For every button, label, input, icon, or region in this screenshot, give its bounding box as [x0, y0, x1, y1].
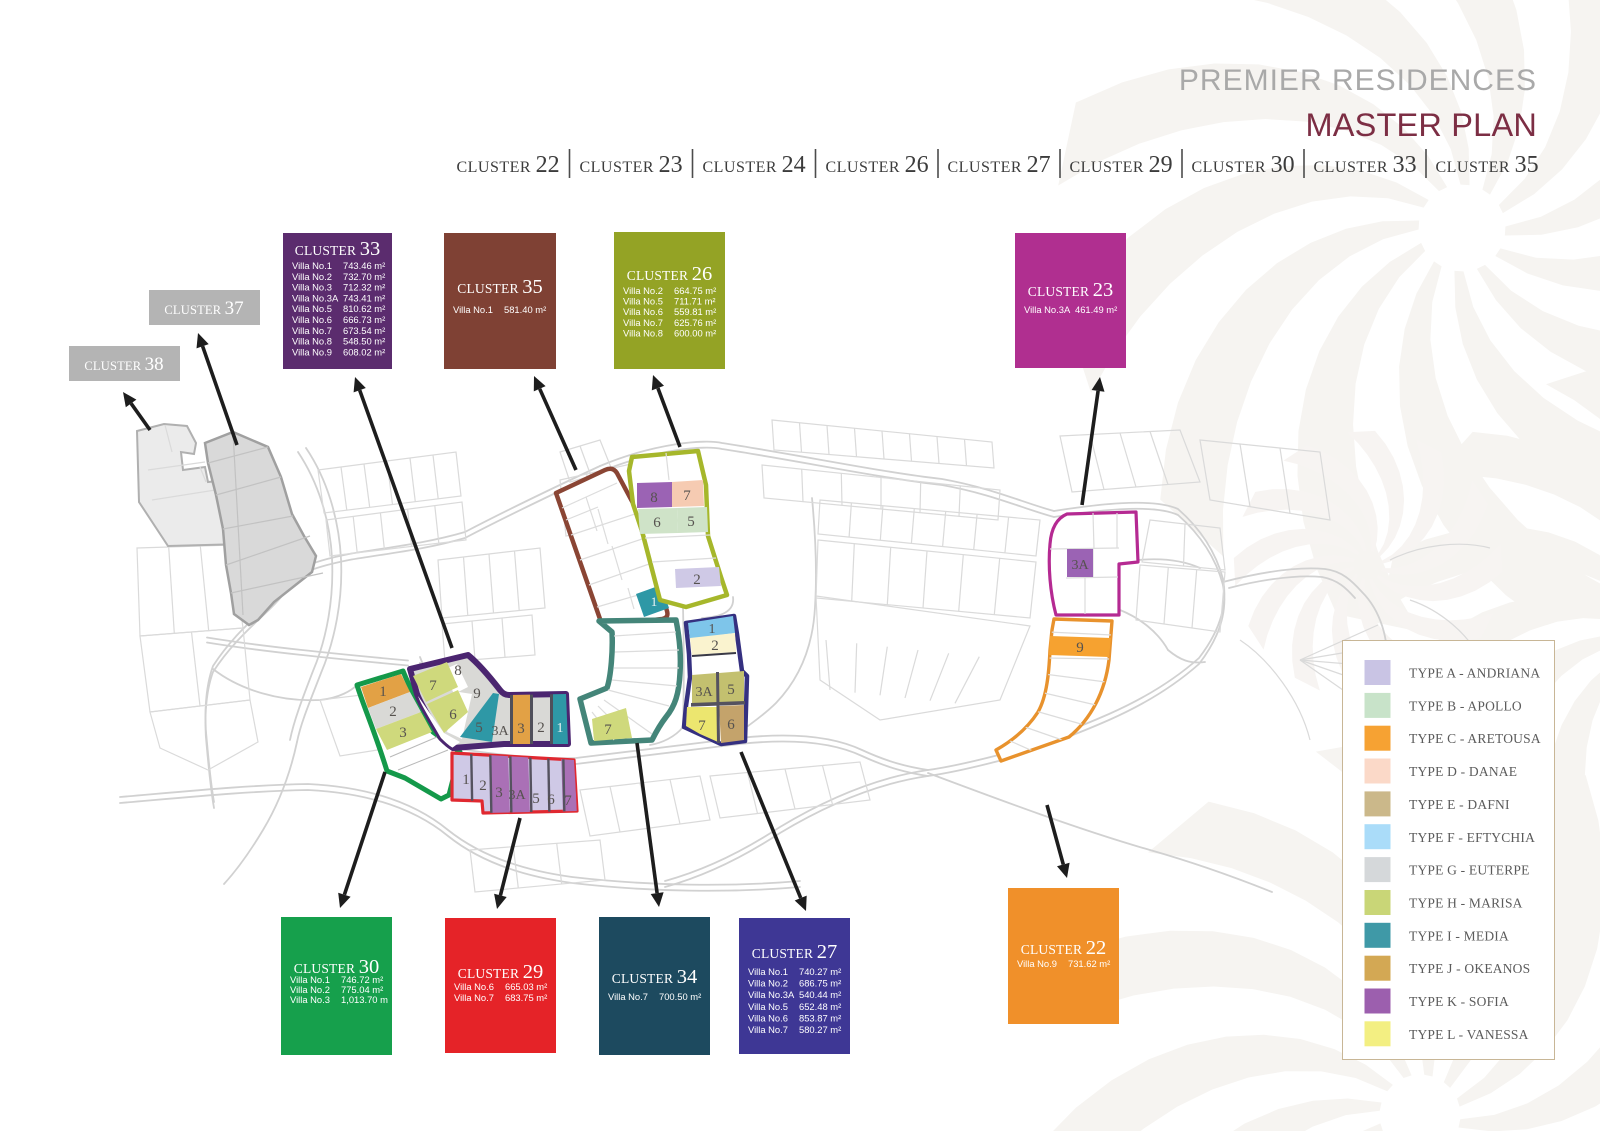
svg-text:5: 5	[727, 682, 735, 698]
svg-text:1: 1	[557, 721, 564, 736]
svg-text:608.02 m²: 608.02 m²	[343, 346, 385, 357]
svg-text:TYPE D - DANAE: TYPE D - DANAE	[1409, 764, 1517, 779]
svg-text:3: 3	[399, 725, 407, 741]
svg-text:743.41 m²: 743.41 m²	[343, 292, 385, 303]
svg-text:664.75 m²: 664.75 m²	[674, 285, 716, 296]
svg-text:9: 9	[1076, 640, 1084, 656]
svg-text:Villa No.1: Villa No.1	[748, 966, 788, 977]
svg-text:Villa No.2: Villa No.2	[623, 285, 663, 296]
svg-text:Villa No.3A: Villa No.3A	[748, 989, 795, 1000]
svg-text:732.70 m²: 732.70 m²	[343, 271, 385, 282]
svg-text:810.62 m²: 810.62 m²	[343, 303, 385, 314]
svg-text:8: 8	[454, 663, 462, 679]
svg-text:Villa No.7: Villa No.7	[292, 325, 332, 336]
svg-text:Villa No.6: Villa No.6	[454, 981, 494, 992]
svg-text:Villa No.6: Villa No.6	[623, 306, 663, 317]
svg-text:673.54 m²: 673.54 m²	[343, 325, 385, 336]
svg-text:548.50 m²: 548.50 m²	[343, 336, 385, 347]
svg-text:TYPE B - APOLLO: TYPE B - APOLLO	[1409, 698, 1522, 713]
svg-text:666.73 m²: 666.73 m²	[343, 314, 385, 325]
svg-text:3A: 3A	[491, 724, 509, 739]
svg-text:6: 6	[547, 792, 555, 808]
svg-text:652.48 m²: 652.48 m²	[799, 1001, 841, 1012]
svg-text:625.76 m²: 625.76 m²	[674, 317, 716, 328]
svg-text:TYPE I - MEDIA: TYPE I - MEDIA	[1409, 928, 1509, 943]
svg-text:Villa No.3: Villa No.3	[290, 994, 330, 1005]
svg-text:5: 5	[475, 720, 483, 736]
svg-text:1: 1	[709, 622, 716, 637]
svg-text:Villa No.7: Villa No.7	[623, 317, 663, 328]
svg-text:Villa No.3: Villa No.3	[292, 282, 332, 293]
svg-text:3A: 3A	[508, 788, 526, 803]
svg-text:TYPE E - DAFNI: TYPE E - DAFNI	[1409, 797, 1510, 812]
svg-text:Villa No.3A: Villa No.3A	[292, 292, 339, 303]
svg-text:580.27 m²: 580.27 m²	[799, 1024, 841, 1035]
svg-text:3A: 3A	[1071, 558, 1089, 573]
svg-text:6: 6	[727, 717, 735, 733]
svg-text:TYPE J - OKEANOS: TYPE J - OKEANOS	[1409, 961, 1530, 976]
svg-text:2: 2	[479, 778, 487, 794]
svg-text:TYPE H - MARISA: TYPE H - MARISA	[1409, 896, 1523, 911]
svg-text:Villa No.8: Villa No.8	[292, 336, 332, 347]
svg-text:Villa No.5: Villa No.5	[292, 303, 332, 314]
svg-text:686.75 m²: 686.75 m²	[799, 978, 841, 989]
svg-text:Villa No.2: Villa No.2	[292, 271, 332, 282]
svg-text:3: 3	[495, 785, 503, 801]
svg-text:1: 1	[462, 772, 470, 788]
svg-text:9: 9	[473, 686, 481, 702]
svg-text:711.71 m²: 711.71 m²	[674, 296, 716, 307]
svg-text:731.62 m²: 731.62 m²	[1068, 958, 1110, 969]
svg-text:6: 6	[449, 707, 457, 723]
svg-text:540.44 m²: 540.44 m²	[799, 989, 841, 1000]
svg-text:600.00 m²: 600.00 m²	[674, 327, 716, 338]
svg-text:TYPE C - ARETOUSA: TYPE C - ARETOUSA	[1409, 731, 1541, 746]
svg-text:743.46 m²: 743.46 m²	[343, 260, 385, 271]
svg-text:665.03 m²: 665.03 m²	[505, 981, 547, 992]
svg-text:Villa No.5: Villa No.5	[623, 296, 663, 307]
svg-text:3: 3	[517, 721, 525, 737]
svg-text:581.40 m²: 581.40 m²	[504, 304, 546, 315]
svg-text:7: 7	[604, 722, 612, 738]
svg-text:MASTER PLAN: MASTER PLAN	[1305, 107, 1537, 143]
svg-text:Villa No.1: Villa No.1	[292, 260, 332, 271]
svg-text:TYPE G - EUTERPE: TYPE G - EUTERPE	[1409, 863, 1530, 878]
svg-text:Villa No.7: Villa No.7	[454, 992, 494, 1003]
svg-text:TYPE L - VANESSA: TYPE L - VANESSA	[1409, 1027, 1529, 1042]
svg-text:Villa No.9: Villa No.9	[1017, 958, 1057, 969]
svg-text:2: 2	[711, 638, 719, 654]
svg-text:7: 7	[429, 678, 437, 694]
svg-text:Villa No.7: Villa No.7	[608, 991, 648, 1002]
svg-text:Villa No.2: Villa No.2	[748, 978, 788, 989]
svg-text:7: 7	[564, 793, 572, 809]
svg-text:Villa No.1: Villa No.1	[453, 304, 493, 315]
svg-text:TYPE A - ANDRIANA: TYPE A - ANDRIANA	[1409, 666, 1540, 681]
svg-text:Villa No.6: Villa No.6	[292, 314, 332, 325]
svg-text:Villa No.8: Villa No.8	[623, 327, 663, 338]
svg-text:1,013.70 m: 1,013.70 m	[341, 994, 388, 1005]
svg-text:1: 1	[651, 594, 658, 609]
svg-text:5: 5	[532, 791, 540, 807]
svg-text:TYPE K - SOFIA: TYPE K - SOFIA	[1409, 994, 1509, 1009]
svg-text:TYPE F - EFTYCHIA: TYPE F - EFTYCHIA	[1409, 830, 1535, 845]
svg-text:700.50 m²: 700.50 m²	[659, 991, 701, 1002]
svg-text:Villa No.7: Villa No.7	[748, 1024, 788, 1035]
svg-text:Villa No.9: Villa No.9	[292, 346, 332, 357]
svg-text:740.27 m²: 740.27 m²	[799, 966, 841, 977]
svg-text:7: 7	[698, 718, 706, 734]
svg-text:2: 2	[537, 720, 545, 736]
svg-text:3A: 3A	[695, 685, 713, 700]
svg-text:Villa No.6: Villa No.6	[748, 1012, 788, 1023]
svg-text:461.49 m²: 461.49 m²	[1075, 304, 1117, 315]
svg-text:853.87 m²: 853.87 m²	[799, 1012, 841, 1023]
svg-text:PREMIER RESIDENCES: PREMIER RESIDENCES	[1179, 64, 1537, 97]
svg-text:8: 8	[650, 490, 658, 506]
svg-text:712.32 m²: 712.32 m²	[343, 282, 385, 293]
svg-text:559.81 m²: 559.81 m²	[674, 306, 716, 317]
svg-text:6: 6	[653, 515, 661, 531]
svg-text:1: 1	[379, 684, 387, 700]
svg-text:2: 2	[389, 704, 397, 720]
svg-text:5: 5	[687, 514, 695, 530]
svg-text:Villa No.5: Villa No.5	[748, 1001, 788, 1012]
svg-text:2: 2	[693, 572, 701, 588]
svg-text:Villa No.3A: Villa No.3A	[1024, 304, 1071, 315]
svg-text:683.75 m²: 683.75 m²	[505, 992, 547, 1003]
svg-text:7: 7	[683, 488, 691, 504]
